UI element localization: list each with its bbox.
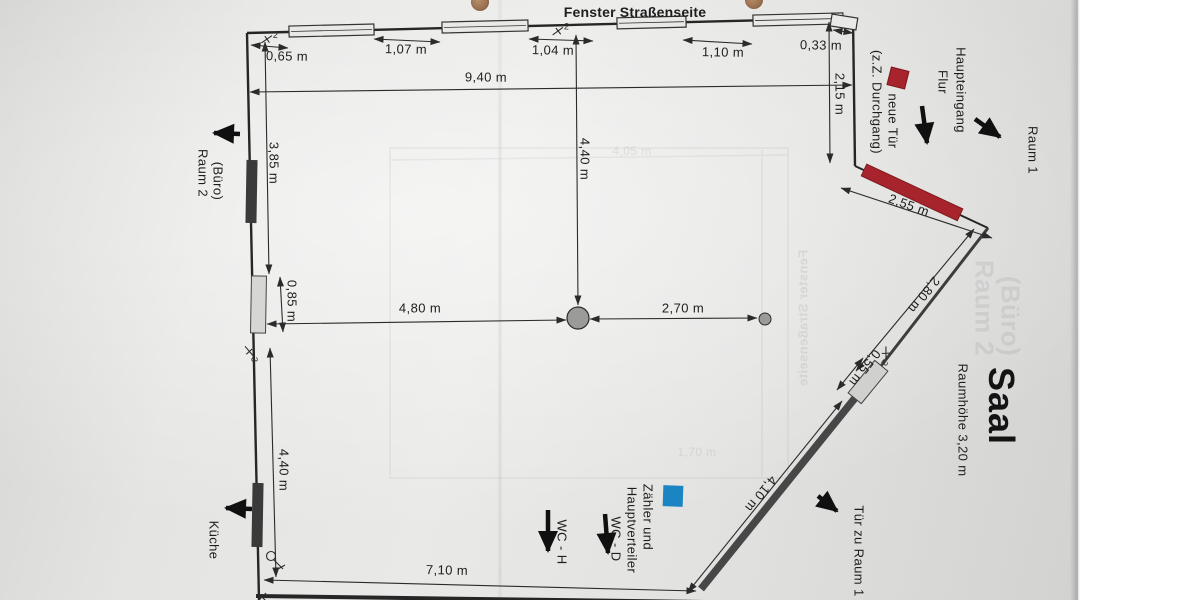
- label-wc-h: WC - H: [555, 520, 570, 565]
- doors: [245, 160, 962, 547]
- label-neue-tuer: neue Tür: [886, 94, 901, 149]
- dim-2-15: 2,15 m: [833, 73, 848, 115]
- column-small: [759, 313, 771, 325]
- dim-1-10: 1,10 m: [702, 44, 744, 60]
- dim-7-10: 7,10 m: [426, 562, 468, 578]
- page-title: Fenster Straßenseite: [564, 4, 707, 20]
- dim-4-40-left: 4,40 m: [277, 449, 292, 491]
- label-hauptverteiler: Hauptverteiler: [625, 487, 640, 574]
- dim-2-70: 2,70 m: [662, 301, 704, 316]
- dim-9-40: 9,40 m: [465, 69, 507, 84]
- label-haupteingang: Haupteingang: [954, 47, 969, 133]
- dim-4-80: 4,80 m: [399, 301, 441, 316]
- room-name: Saal: [980, 367, 1022, 445]
- ghost-title: Fenster Straßenseite: [796, 250, 811, 387]
- label-zaehler: Zähler und: [641, 484, 656, 550]
- ghost-dim: 4,05 m: [612, 144, 651, 158]
- label-raum2: Raum 2: [196, 149, 211, 197]
- dim-4-40-center: 4,40 m: [578, 138, 593, 180]
- dim-3-85: 3,85 m: [267, 142, 282, 184]
- label-tuer-zu-raum1: Tür zu Raum 1: [852, 505, 867, 596]
- svg-text:2: 2: [273, 30, 279, 40]
- switch-icon: 3: [245, 346, 260, 362]
- label-raumhoehe: Raumhöhe 3,20 m: [956, 364, 971, 477]
- floorplan-photo: 2 2 2 3 4,05 m 1,70 m Fenster Straßensei…: [0, 0, 1200, 600]
- dim-1-04: 1,04 m: [532, 42, 574, 58]
- ghost-buero: (Büro): [995, 276, 1026, 356]
- dim-0-33: 0,33 m: [800, 37, 842, 53]
- arrow-neue-tuer: [922, 106, 927, 143]
- label-wc-d: WC - D: [609, 517, 624, 562]
- ghost-dim: 1,70 m: [677, 445, 716, 459]
- dim-0-65: 0,65 m: [266, 48, 308, 64]
- label-flur: Flur: [936, 70, 951, 94]
- switch-icon: 2: [553, 21, 569, 36]
- svg-text:3: 3: [249, 357, 259, 362]
- svg-text:2: 2: [564, 21, 569, 31]
- arrow-kueche: [226, 508, 252, 509]
- arrow-haupteingang: [975, 119, 1000, 137]
- dim-0-85: 0,85 m: [285, 280, 300, 322]
- label-kueche: Küche: [207, 521, 222, 560]
- dim-1-07: 1,07 m: [385, 41, 427, 57]
- arrow-raum2: [214, 133, 240, 134]
- door-raum2: [245, 160, 257, 223]
- arrow-tuer-raum1: [818, 496, 837, 511]
- door-kueche: [251, 483, 263, 547]
- legend-swatch-meter: [663, 485, 684, 507]
- label-buero: (Büro): [211, 162, 226, 201]
- label-neue-tuer-2: (z.Z. Durchgang): [870, 50, 885, 154]
- door-left-085: [250, 276, 266, 333]
- column-large: [567, 307, 589, 329]
- label-raum1: Raum 1: [1026, 126, 1041, 174]
